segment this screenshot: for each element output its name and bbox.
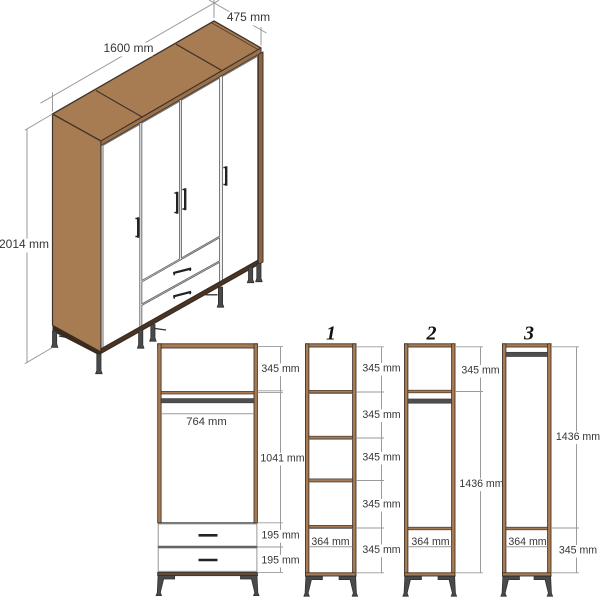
svg-text:345 mm: 345 mm: [362, 363, 400, 375]
svg-text:345 mm: 345 mm: [559, 545, 597, 557]
svg-text:2: 2: [426, 323, 437, 345]
svg-text:1: 1: [326, 323, 336, 345]
svg-text:1436 mm: 1436 mm: [556, 431, 600, 443]
svg-text:195 mm: 195 mm: [261, 530, 299, 542]
svg-text:195 mm: 195 mm: [261, 554, 299, 566]
svg-text:345 mm: 345 mm: [362, 499, 400, 511]
svg-text:345 mm: 345 mm: [461, 365, 499, 377]
svg-text:345 mm: 345 mm: [261, 363, 299, 375]
svg-text:2014 mm: 2014 mm: [0, 237, 49, 251]
svg-text:3: 3: [523, 323, 534, 345]
svg-text:345 mm: 345 mm: [362, 409, 400, 421]
svg-text:1041 mm: 1041 mm: [260, 452, 304, 464]
svg-text:364 mm: 364 mm: [311, 536, 349, 548]
svg-text:1600 mm: 1600 mm: [103, 41, 153, 55]
svg-text:345 mm: 345 mm: [362, 544, 400, 556]
svg-text:364 mm: 364 mm: [411, 536, 449, 548]
svg-text:345 mm: 345 mm: [362, 452, 400, 464]
svg-text:1436 mm: 1436 mm: [459, 478, 503, 490]
svg-text:764 mm: 764 mm: [186, 416, 226, 428]
svg-text:475 mm: 475 mm: [227, 10, 270, 24]
svg-text:364 mm: 364 mm: [508, 536, 546, 548]
